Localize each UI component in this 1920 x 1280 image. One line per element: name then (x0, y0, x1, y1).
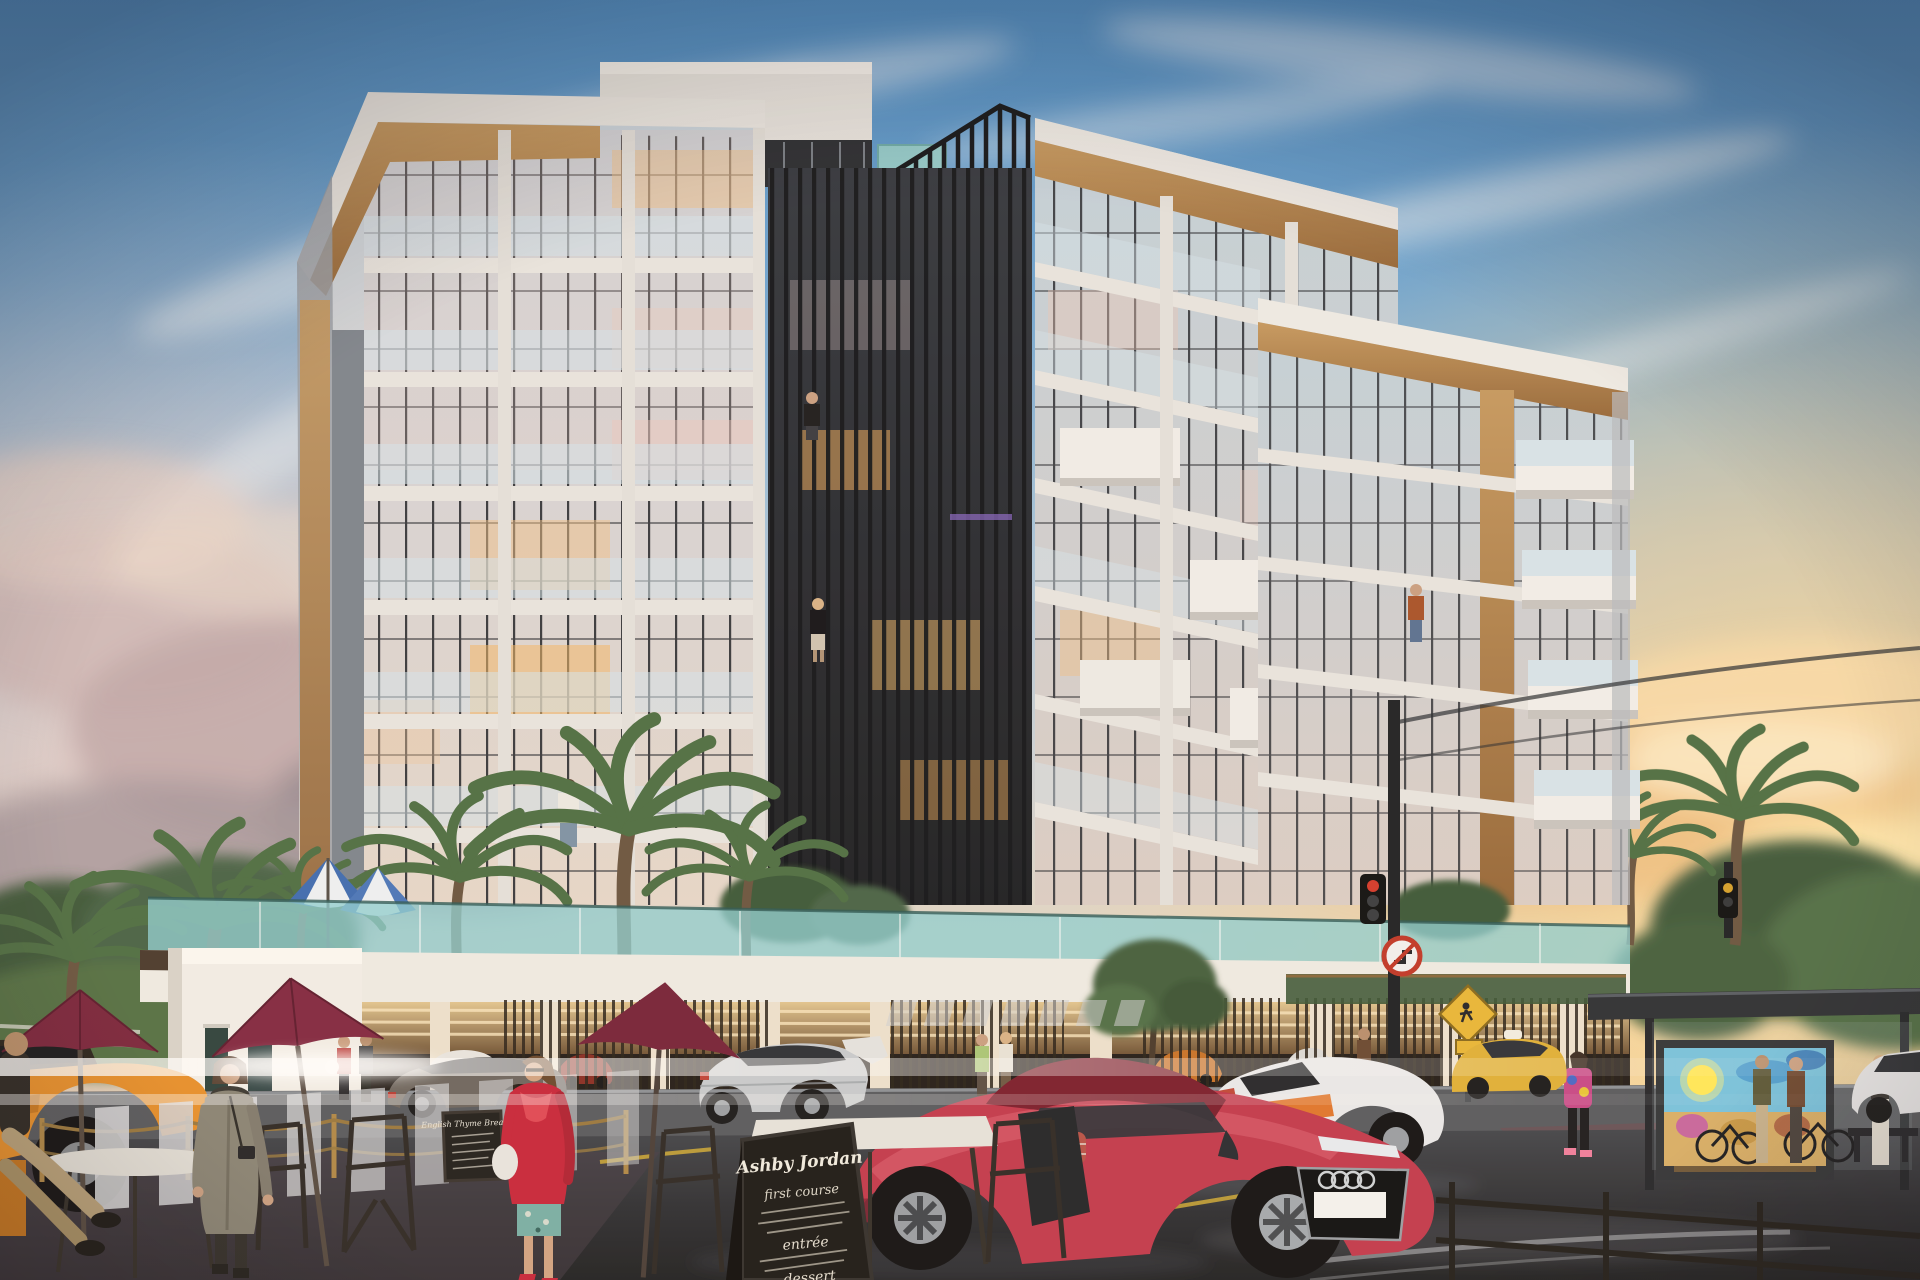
scene-canvas: English Thyme Breakfast Ashby Jordan fir… (0, 0, 1920, 1280)
architectural-render: English Thyme Breakfast Ashby Jordan fir… (0, 0, 1920, 1280)
vignette (0, 0, 1920, 1280)
